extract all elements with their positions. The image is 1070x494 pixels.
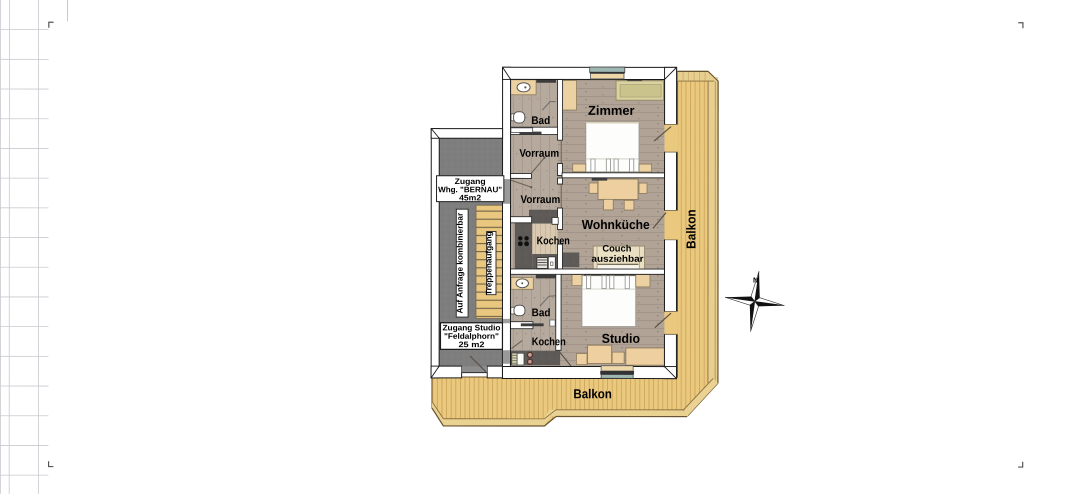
svg-text:Bad: Bad [532, 307, 551, 319]
svg-text:Treppenaufgang: Treppenaufgang [484, 231, 493, 295]
svg-text:Kochen: Kochen [532, 336, 566, 348]
svg-text:Auf Anfrage kombinierbar: Auf Anfrage kombinierbar [456, 212, 465, 314]
svg-text:Kochen: Kochen [537, 235, 570, 247]
svg-text:Studio: Studio [602, 331, 640, 346]
svg-text:Wohnküche: Wohnküche [582, 217, 650, 232]
svg-text:N: N [753, 276, 758, 285]
svg-text:45m2: 45m2 [459, 193, 482, 202]
svg-text:Balkon: Balkon [683, 209, 698, 249]
svg-text:Vorraum: Vorraum [519, 148, 559, 160]
svg-text:Vorraum: Vorraum [521, 194, 561, 206]
svg-text:ausziehbar: ausziehbar [591, 254, 644, 264]
svg-text:25 m2: 25 m2 [458, 340, 485, 349]
svg-text:Zimmer: Zimmer [588, 103, 635, 118]
svg-text:Couch: Couch [602, 244, 631, 254]
svg-text:Balkon: Balkon [573, 386, 612, 401]
svg-text:Bad: Bad [531, 115, 550, 127]
